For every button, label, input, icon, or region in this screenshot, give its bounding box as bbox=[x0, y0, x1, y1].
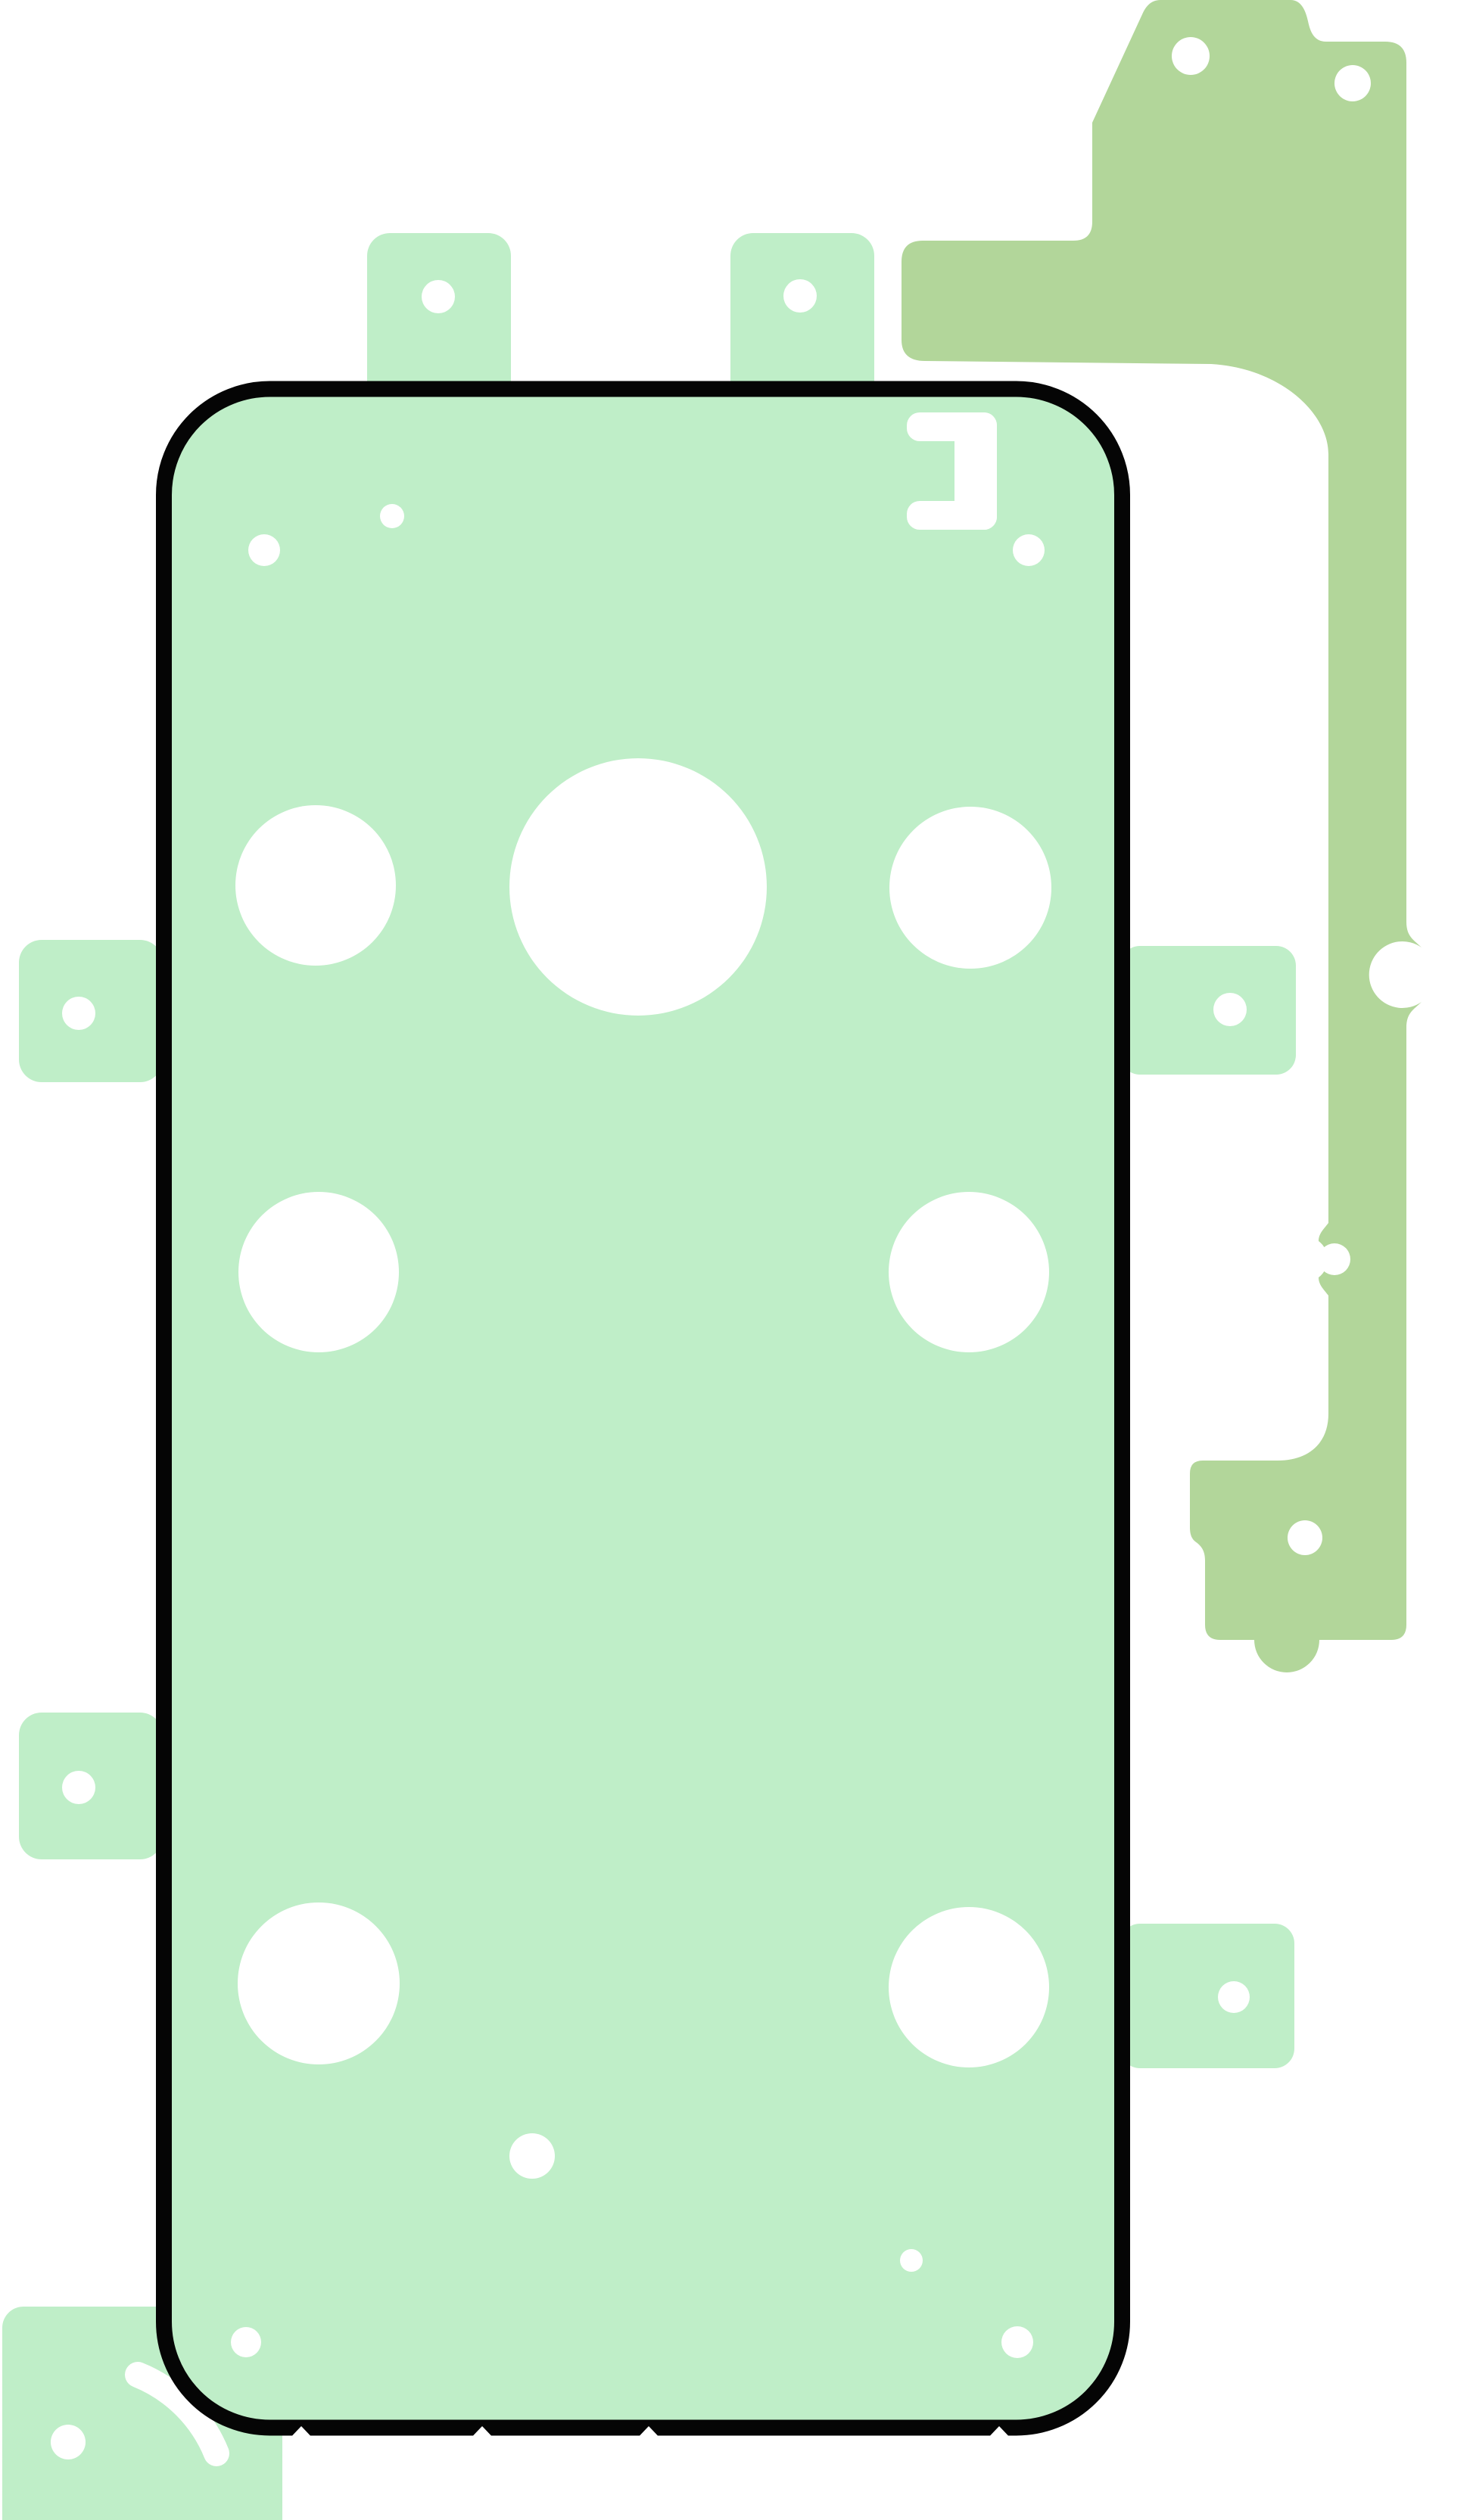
hole-mid-left bbox=[238, 1192, 399, 1352]
pinhole-lower-c bbox=[1001, 2326, 1033, 2358]
corner-liner-hole bbox=[51, 2425, 86, 2459]
left-tab-lower-hole bbox=[62, 1771, 95, 1804]
strip-hole-top-left bbox=[1172, 37, 1210, 75]
hole-bottom-left bbox=[238, 1902, 400, 2064]
right-tab-upper bbox=[1120, 946, 1296, 1075]
adhesive-sheet-svg bbox=[0, 0, 1473, 2520]
main-sticker-outline bbox=[164, 389, 1123, 2428]
hole-bottom-right bbox=[889, 1907, 1049, 2067]
pinhole-upper-c bbox=[1013, 534, 1045, 566]
pinhole-upper-b bbox=[380, 504, 404, 528]
left-tab-upper-hole bbox=[62, 997, 95, 1030]
pinhole-upper-a bbox=[248, 534, 280, 566]
strip-hole-right-knob bbox=[1425, 956, 1462, 994]
camera-hole-large bbox=[509, 758, 767, 1016]
hole-top-left bbox=[235, 805, 396, 966]
pinhole-lower-b bbox=[231, 2327, 261, 2357]
hole-top-right bbox=[889, 807, 1051, 969]
right-tab-lower-hole bbox=[1218, 1981, 1250, 2013]
right-tab-upper-hole bbox=[1213, 993, 1247, 1026]
adhesive-sheet-image bbox=[0, 0, 1473, 2520]
strip-hole-top-right bbox=[1334, 65, 1371, 101]
hole-mid-right bbox=[889, 1192, 1049, 1352]
bracket-cutout-bottom-bar bbox=[907, 501, 997, 530]
right-tab-lower bbox=[1120, 1924, 1294, 2068]
strip-hole-left-knob bbox=[1319, 1243, 1350, 1275]
top-tab-right-hole bbox=[783, 279, 817, 313]
top-tab-left-hole bbox=[422, 280, 455, 313]
hole-small-center bbox=[509, 2133, 555, 2179]
strip-hole-foot bbox=[1288, 1520, 1322, 1555]
pinhole-lower-a bbox=[900, 2249, 923, 2272]
